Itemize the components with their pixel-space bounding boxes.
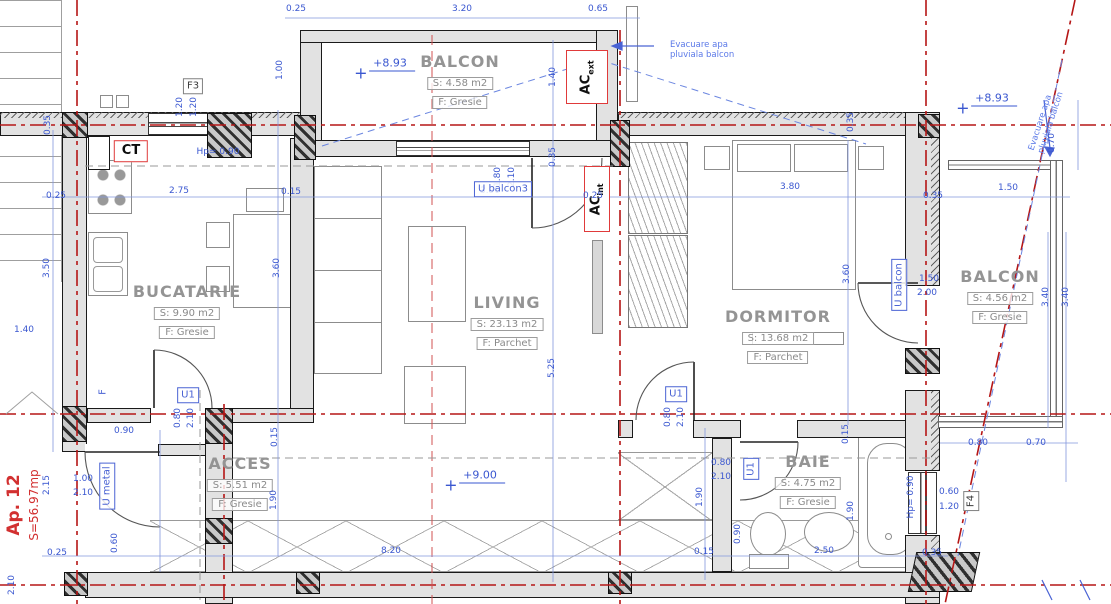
column: [294, 115, 316, 160]
dimension-text: 0.15: [694, 547, 714, 557]
column: [296, 572, 320, 594]
room-label: BUCATARIE S: 9.90 m2 F: Gresie: [133, 282, 241, 339]
dimension-text: 0.15: [270, 427, 280, 447]
room-label: BALCON S: 4.58 m2 F: Gresie: [420, 52, 500, 109]
column: [608, 572, 632, 594]
annotation-note: Evacuare apa pluviala balcon: [670, 40, 758, 60]
door-opening-balcony-right: [905, 285, 940, 391]
dimension-text: 2.10: [186, 408, 196, 428]
room-area: S: 5.51 m2: [207, 479, 273, 492]
chair: [246, 188, 284, 212]
room-name: BUCATARIE: [133, 282, 241, 301]
dimension-text: 0.60: [110, 533, 120, 553]
dimension-text: Hp= 0.90: [906, 476, 916, 519]
element-tag: F4: [963, 491, 979, 511]
column: [905, 348, 940, 374]
dimension-text: 0.25: [583, 191, 603, 201]
annotation-note: Evacuare apa pluviala balcon: [1027, 65, 1074, 155]
room-name: BALCON: [960, 267, 1040, 286]
room-finish: F: Gresie: [432, 96, 487, 109]
dimension-text: Hp= 0.90: [197, 147, 240, 157]
dimension-text: 3.20: [452, 4, 472, 14]
coffee-table: [408, 226, 466, 322]
element-tag: U1: [177, 387, 199, 403]
dimension-text: 1.20: [189, 97, 199, 117]
dimension-text: 1.20: [175, 97, 185, 117]
pillow: [794, 144, 848, 172]
dimension-text: 1.90: [269, 490, 279, 510]
insulation-band: [618, 112, 940, 118]
dimension-text: 0.80: [173, 408, 183, 428]
room-name: BAIE: [775, 452, 841, 471]
element-tag: F: [96, 386, 110, 398]
level-cross-icon: +: [444, 476, 457, 495]
room-label: DORMITOR S: 13.68 m2 F: Parchet: [725, 307, 831, 364]
dimension-text: 0.80: [711, 458, 731, 468]
room-finish: F: Gresie: [159, 326, 214, 339]
room-area: S: 4.75 m2: [775, 477, 841, 490]
level-marker: ++8.93: [971, 92, 1017, 105]
bottom-wall: [85, 572, 940, 598]
room-label: LIVING S: 23.13 m2 F: Parchet: [471, 293, 544, 350]
level-marker: ++9.00: [459, 469, 505, 482]
entry-wall: [158, 444, 208, 456]
ac-ext-label: ACext: [579, 60, 596, 94]
column: [205, 408, 233, 444]
nightstand: [858, 146, 884, 170]
dimension-text: 3.80: [780, 182, 800, 192]
dimension-text: 8.20: [381, 546, 401, 556]
living-rug: [404, 366, 466, 424]
level-cross-icon: +: [956, 99, 969, 118]
dimension-text: 3.60: [272, 258, 282, 278]
dimension-text: 0.35: [548, 147, 558, 167]
balcony-rail-top: [948, 160, 1058, 170]
wall-socket: [100, 95, 113, 108]
dimension-text: 1.90: [695, 487, 705, 507]
element-tag: U1: [665, 386, 687, 402]
toilet: [748, 512, 790, 570]
room-name: ACCES: [207, 454, 273, 473]
level-marker: ++8.93: [369, 57, 415, 70]
room-area: S: 4.58 m2: [427, 77, 493, 90]
door-opening-entry: [85, 444, 158, 456]
dimension-text: 1.00: [73, 474, 93, 484]
room-area: S: 13.68 m2: [742, 332, 815, 345]
ct-niche: [88, 136, 110, 170]
dimension-text: 0.25: [46, 191, 66, 201]
dimension-text: 1.90: [846, 501, 856, 521]
level-cross-icon: +: [354, 64, 367, 83]
column: [62, 406, 87, 442]
dimension-text: 0.70: [1026, 438, 1046, 448]
dimension-text: 0.80: [968, 438, 988, 448]
dimension-text: 0.25: [47, 548, 67, 558]
pillow: [737, 144, 791, 172]
tv-panel: [592, 240, 603, 334]
dimension-text: 0.35: [43, 115, 53, 135]
dimension-text: 0.90: [733, 524, 743, 544]
dimension-text: 5.25: [547, 358, 557, 378]
apartment-id: Ap. 12: [4, 474, 24, 535]
chair: [206, 222, 230, 248]
dimension-text: 3.40: [1041, 287, 1051, 307]
dimension-text: 0.25: [286, 4, 306, 14]
room-finish: F: Gresie: [212, 498, 267, 511]
dimension-text: 0.35: [846, 112, 856, 132]
dimension-text: 1.50: [919, 274, 939, 284]
dimension-text: 0.15: [841, 424, 851, 444]
stair-direction-arrow: [6, 392, 58, 414]
column: [918, 114, 940, 138]
column: [205, 518, 233, 544]
dimension-text: 1.40: [548, 67, 558, 87]
kitchen-living-wall: [290, 138, 314, 420]
dimension-text: 2.75: [169, 186, 189, 196]
dimension-text: 0.80: [663, 407, 673, 427]
door-opening-bath: [740, 420, 798, 438]
element-tag: U1: [743, 458, 759, 480]
window-balcony-door: [396, 141, 530, 156]
level-value: +8.93: [971, 92, 1017, 107]
dimension-text: 3.60: [842, 264, 852, 284]
level-value: +9.00: [459, 469, 505, 484]
wall-socket: [116, 95, 129, 108]
dimension-text: 2.10: [73, 488, 93, 498]
dimension-text: 0.35: [923, 191, 943, 201]
dimension-text: 0.65: [588, 4, 608, 14]
dimension-text: 2.00: [917, 288, 937, 298]
kitchen-left-wall: [62, 112, 87, 452]
dimension-text: 1.40: [14, 325, 34, 335]
room-finish: F: Gresie: [972, 311, 1027, 324]
room-name: BALCON: [420, 52, 500, 71]
balcony-rail-bottom: [938, 416, 1063, 428]
kitchen-sink: [88, 232, 128, 296]
dimension-text: 0.60: [939, 487, 959, 497]
element-tag: U metal: [99, 462, 115, 509]
nightstand: [704, 146, 730, 170]
dimension-text: 3.50: [42, 258, 52, 278]
ac-exterior-unit: ACext: [566, 50, 608, 104]
room-area: S: 23.13 m2: [471, 318, 544, 331]
balcony-wall-top: [300, 30, 618, 43]
wardrobe: [628, 235, 688, 328]
dimension-text: 0.35: [922, 548, 942, 558]
dimension-text: 2.15: [42, 475, 52, 495]
room-finish: F: Parchet: [476, 337, 537, 350]
apartment-total-area: S=56.97mp: [27, 469, 41, 540]
element-tag: U balcon3: [474, 181, 532, 197]
dimension-text: 0.15: [281, 187, 301, 197]
room-area: S: 4.56 m2: [967, 292, 1033, 305]
dimension-text: 2.10: [711, 472, 731, 482]
room-label: BAIE S: 4.75 m2 F: Gresie: [775, 452, 841, 509]
room-name: LIVING: [471, 293, 544, 312]
room-label: BALCON S: 4.56 m2 F: Gresie: [960, 267, 1040, 324]
dimension-text: 1.00: [275, 60, 285, 80]
dimension-text: 3.40: [1061, 287, 1071, 307]
column: [610, 120, 630, 167]
rain-pipe: [626, 6, 638, 102]
room-label: ACCES S: 5.51 m2 F: Gresie: [207, 454, 273, 511]
dimension-text: 2.10: [7, 575, 17, 595]
dimension-text: 1.50: [998, 183, 1018, 193]
room-finish: F: Gresie: [780, 496, 835, 509]
room-finish: F: Parchet: [747, 351, 808, 364]
kitchen-table: [233, 214, 295, 308]
room-area: S: 9.90 m2: [154, 307, 220, 320]
dimension-text: 0.90: [114, 426, 134, 436]
dimension-text: 2.50: [814, 546, 834, 556]
element-tag: CT: [114, 140, 148, 162]
wardrobe: [628, 142, 688, 234]
sofa: [312, 166, 382, 374]
element-tag: U balcon: [891, 259, 907, 311]
column: [64, 572, 88, 596]
column: [908, 552, 981, 592]
dimension-text: 1.20: [939, 502, 959, 512]
room-name: DORMITOR: [725, 307, 831, 326]
level-value: +8.93: [369, 57, 415, 72]
floor-plan: ACext ACint Ap. 12 S=56.97mp BALCON S: 4…: [0, 0, 1111, 604]
column: [62, 112, 88, 138]
staircase: [0, 0, 62, 282]
element-tag: F3: [183, 78, 203, 94]
dimension-text: 2.10: [676, 407, 686, 427]
